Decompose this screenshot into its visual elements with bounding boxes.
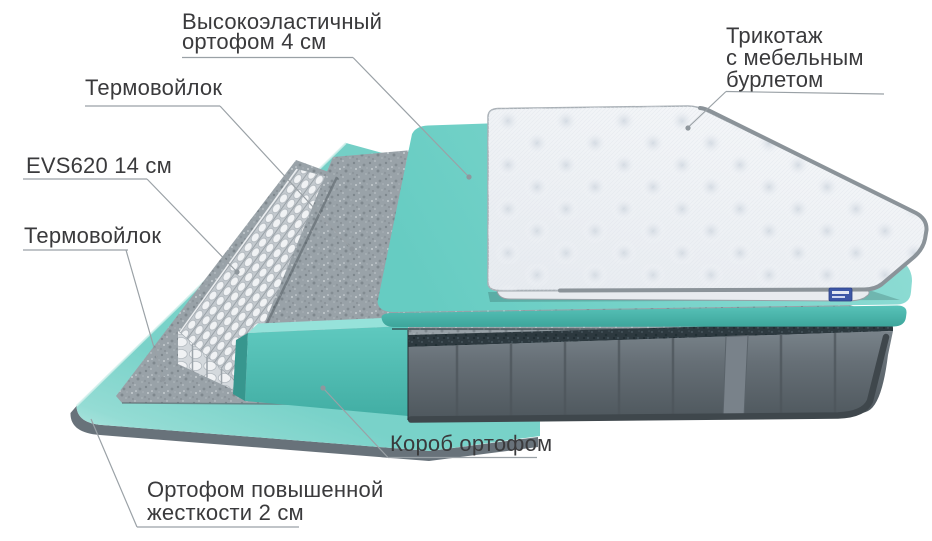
box-foam-front <box>245 326 408 416</box>
dot-springs <box>234 269 239 274</box>
brand-tag-icon <box>829 288 852 301</box>
label-base-foam: Ортофом повышенной жесткости 2 см <box>147 478 383 524</box>
top-foam-shadow-line <box>392 329 893 330</box>
label-cover-line1: Трикотаж <box>726 25 864 47</box>
label-cover-line2: с мебельным <box>726 47 864 69</box>
label-box-foam-text: Короб ортофом <box>390 433 552 455</box>
cover-knit-texture <box>488 106 927 291</box>
label-base-foam-line1: Ортофом повышенной <box>147 478 383 501</box>
dot-felt-lower <box>160 376 165 381</box>
label-cover: Трикотаж с мебельным бурлетом <box>726 25 864 91</box>
dot-cover <box>685 125 690 130</box>
label-felt-upper-text: Термовойлок <box>85 77 222 99</box>
body-handle <box>723 336 748 419</box>
mattress-layers-diagram: Высокоэластичный ортофом 4 см Трикотаж с… <box>0 0 932 541</box>
dot-top-foam <box>466 174 471 179</box>
label-top-foam-line2: ортофом 4 см <box>182 32 382 52</box>
label-springs: EVS620 14 см <box>26 155 172 177</box>
label-felt-lower: Термовойлок <box>24 225 161 247</box>
label-box-foam: Короб ортофом <box>390 433 552 455</box>
dot-felt-upper <box>349 246 354 251</box>
label-top-foam: Высокоэластичный ортофом 4 см <box>182 12 382 52</box>
label-base-foam-line2: жесткости 2 см <box>147 501 383 524</box>
label-felt-lower-text: Термовойлок <box>24 225 161 247</box>
label-springs-text: EVS620 14 см <box>26 155 172 177</box>
label-felt-upper: Термовойлок <box>85 77 222 99</box>
label-cover-line3: бурлетом <box>726 69 864 91</box>
dot-box-foam <box>320 385 325 390</box>
